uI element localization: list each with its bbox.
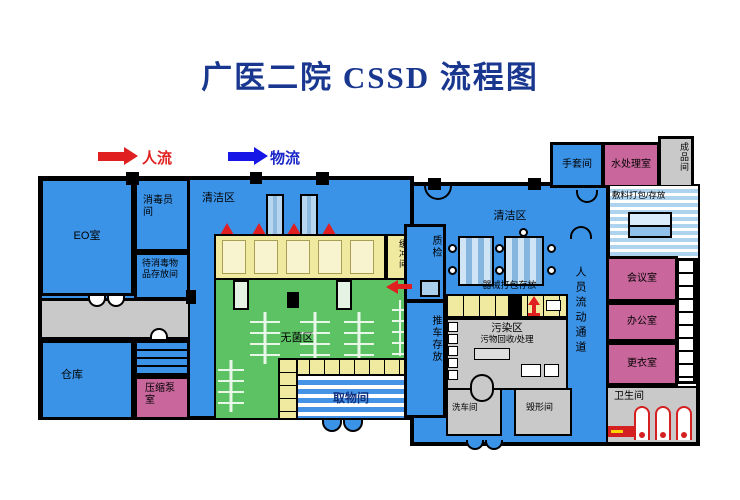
room-qc-label: 质检: [430, 235, 441, 259]
dirty-sink-2: [544, 364, 559, 377]
people-flow-arrow-up-base-icon: [528, 313, 540, 316]
people-flow-arrow-left-icon: [386, 280, 398, 294]
room-cart-storage-label: 推车存放: [430, 315, 441, 363]
wall-stub-5: [528, 178, 541, 190]
room-wash-label: 洗车间: [452, 402, 478, 412]
room-office: 办公室: [606, 302, 678, 342]
washer-machine-2: [300, 194, 318, 238]
material-flow-arrowhead-icon: [254, 147, 268, 165]
toilet-icon-1: [639, 432, 645, 438]
material-flow-label: 物流: [270, 147, 300, 168]
room-water: 水处理室: [602, 142, 660, 188]
qc-table: [420, 280, 440, 297]
band-black-segment: [508, 294, 522, 318]
passthrough-unit-1: [233, 280, 249, 310]
room-disinfect-staff: 消毒员间: [134, 178, 190, 252]
dirty-sub-label: 污物回收/处理: [446, 334, 568, 344]
toilet-sink-badge: [608, 426, 634, 437]
pickup-counter-left: [278, 358, 298, 420]
people-flow-arrowhead-icon: [124, 147, 138, 165]
sterile-rack-4: [218, 360, 244, 412]
room-product-label: 成品间: [679, 142, 689, 172]
sterile-area-label: 无菌区: [214, 332, 380, 345]
toilet-icon-2: [660, 432, 666, 438]
packing-table-1: [222, 240, 246, 274]
wall-stub-4: [428, 178, 441, 190]
toilet-stall-1: [634, 406, 650, 440]
wall-stub-sterile: [287, 292, 299, 308]
toilet-icon-3: [681, 432, 687, 438]
room-changing-label: 更衣室: [627, 358, 657, 370]
people-flow-arrow-stem-icon: [398, 284, 412, 289]
room-glove: 手套间: [550, 142, 604, 188]
room-pickup: 取物间: [296, 374, 406, 420]
room-office-label: 办公室: [627, 316, 657, 328]
room-changing: 更衣室: [606, 342, 678, 386]
toilet-label: 卫生间: [614, 391, 644, 403]
room-eo: EO室: [40, 178, 134, 296]
wall-stub-6: [186, 290, 196, 304]
clean-area-left-label: 清洁区: [202, 192, 235, 205]
stool-5: [547, 244, 556, 253]
room-warehouse-label: 仓库: [61, 369, 83, 381]
room-warehouse: 仓库: [40, 340, 134, 420]
room-eo-label: EO室: [74, 230, 101, 243]
packing-table-3: [286, 240, 310, 274]
washer-machine-1: [266, 194, 284, 238]
packing-table-4: [318, 240, 342, 274]
staircase: [134, 340, 190, 378]
toilet-sink-badge-mark: [611, 430, 623, 433]
entrance-door-arc-1: [322, 420, 342, 432]
entrance-door-arc-2: [343, 420, 363, 432]
stool-3: [495, 244, 504, 253]
stool-1: [448, 244, 457, 253]
room-meeting: 会议室: [606, 256, 678, 302]
stool-6: [547, 266, 556, 275]
room-pump: 压缩泵室: [134, 376, 190, 420]
room-pending-storage: 待消毒物品存放间: [134, 252, 190, 300]
door-arc-hall: [150, 328, 168, 339]
wall-stub-1: [126, 172, 139, 185]
wall-stub-2: [250, 172, 262, 184]
stool-7: [519, 228, 528, 237]
room-destroy: 毁形间: [514, 388, 572, 436]
room-product: 成品间: [658, 136, 694, 188]
dressing-table-top: [628, 212, 672, 225]
material-flow-arrow-icon: [228, 152, 254, 161]
room-cart-storage: 推车存放: [404, 300, 446, 418]
pack-table-b: [504, 236, 544, 286]
toilet-stall-2: [655, 406, 671, 440]
room-destroy-label: 毁形间: [526, 402, 553, 412]
dirty-equip-1: [448, 322, 458, 332]
wall-stub-3: [316, 172, 329, 185]
room-glove-label: 手套间: [562, 159, 592, 171]
toilet-stall-3: [676, 406, 692, 440]
passthrough-unit-2: [336, 280, 352, 310]
stool-4: [495, 266, 504, 275]
packing-table-2: [254, 240, 278, 274]
wash-exit-arc-1: [466, 440, 484, 450]
packing-table-5: [350, 240, 374, 274]
dressing-table-bottom: [628, 225, 672, 238]
room-pickup-label: 取物间: [333, 389, 369, 406]
stool-2: [448, 266, 457, 275]
cssd-floorplan-page: 广医二院 CSSD 流程图 人流 物流 EO室 消毒员间 待消毒物品存放间 仓库…: [0, 0, 740, 500]
dirty-equip-5: [448, 370, 458, 380]
wash-exit-arc-2: [485, 440, 503, 450]
dirty-equip-3: [448, 346, 458, 356]
people-flow-arrow-icon: [98, 152, 124, 161]
pack-table-a: [458, 236, 494, 286]
dirty-area-label: 污染区: [446, 322, 568, 335]
room-disinfect-staff-label: 消毒员间: [143, 195, 173, 218]
room-pump-label: 压缩泵室: [145, 383, 175, 406]
people-flow-label: 人流: [142, 147, 172, 168]
instrument-packing-label: 器械打包存放: [452, 280, 567, 291]
band-hatch-box: [546, 300, 561, 311]
window-strip: [676, 258, 696, 384]
corridor-label: 人员流动通道: [572, 266, 588, 416]
dirty-sink-1: [521, 364, 541, 377]
room-meeting-label: 会议室: [627, 273, 657, 285]
page-title: 广医二院 CSSD 流程图: [0, 52, 740, 97]
room-water-label: 水处理室: [611, 159, 651, 171]
room-pending-storage-label: 待消毒物品存放间: [142, 258, 178, 279]
dirty-table: [474, 348, 510, 360]
dressing-area-label: 敷料打包/存放: [612, 190, 694, 200]
dirty-equip-4: [448, 358, 458, 368]
dirty-equip-2: [448, 334, 458, 344]
clean-area-right-label: 清洁区: [455, 210, 565, 223]
